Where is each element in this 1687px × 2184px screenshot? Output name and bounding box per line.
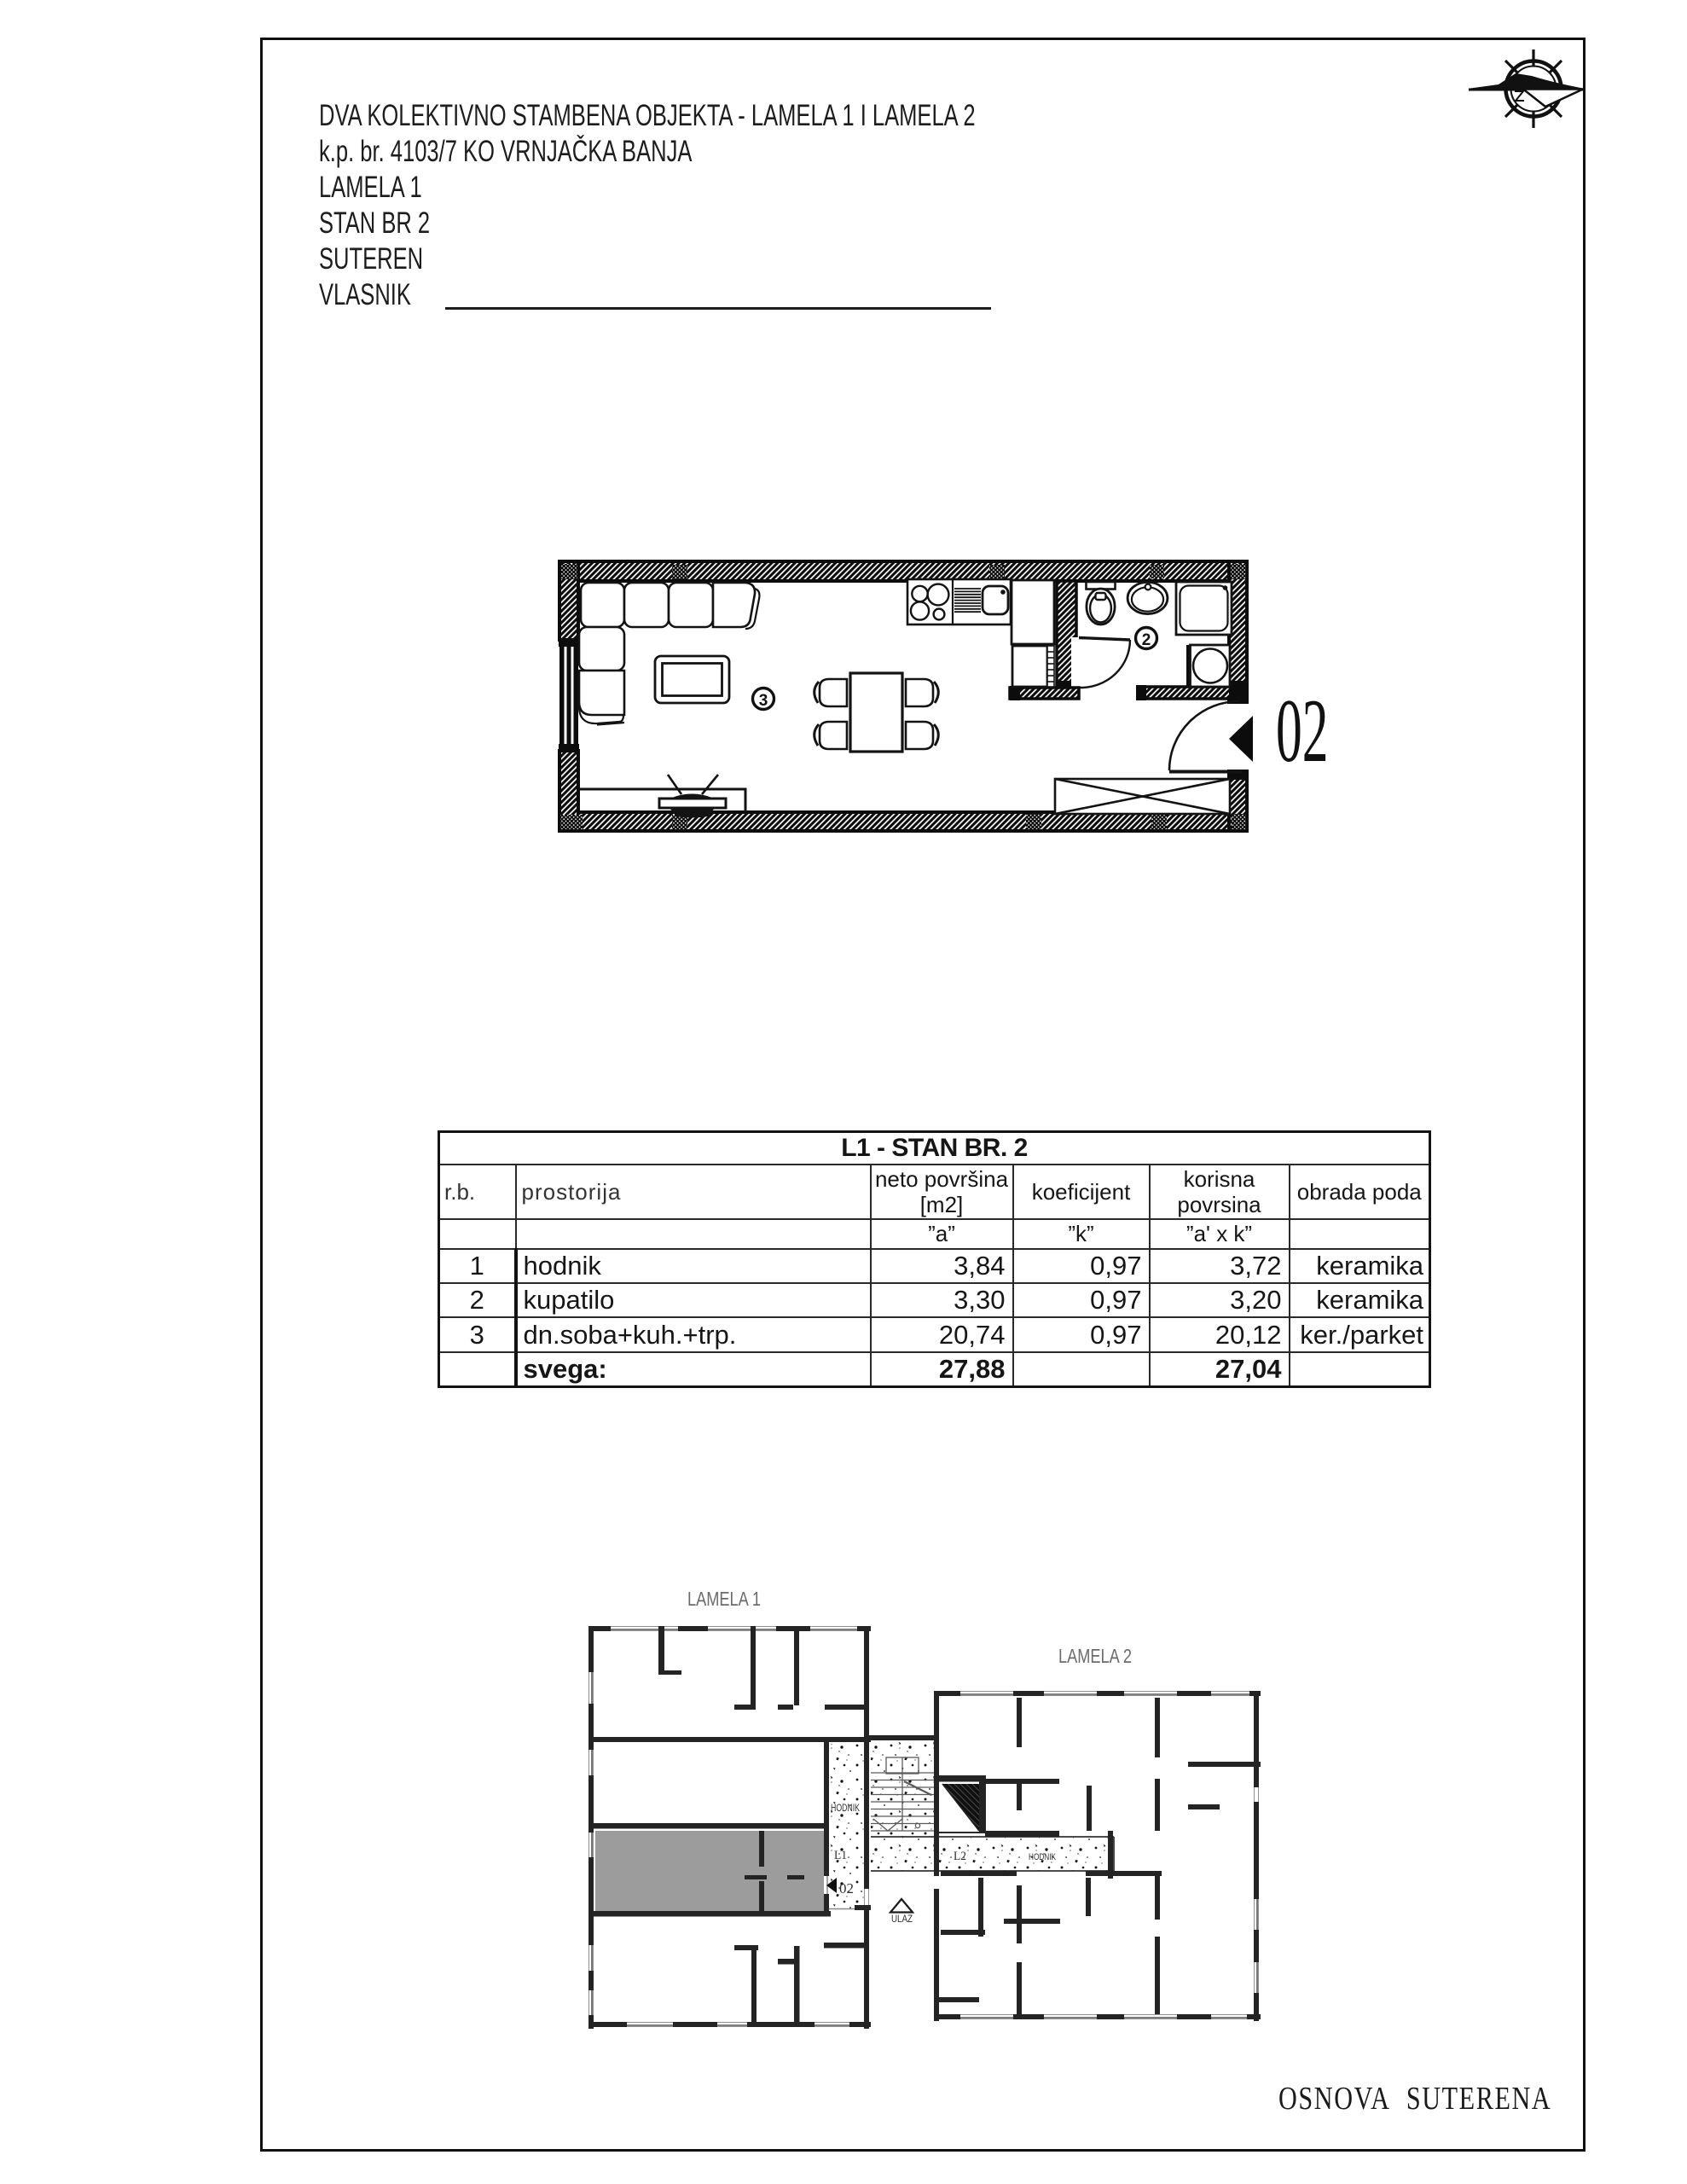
svg-text:02: 02 bbox=[839, 1880, 854, 1896]
svg-text:2: 2 bbox=[1142, 631, 1151, 649]
svg-text:L2: L2 bbox=[954, 1850, 966, 1863]
svg-text:ULAZ: ULAZ bbox=[891, 1913, 913, 1925]
svg-text:LAMELA 2: LAMELA 2 bbox=[1058, 1645, 1132, 1667]
svg-text:HODNIK: HODNIK bbox=[1029, 1852, 1056, 1862]
svg-text:LAMELA 1: LAMELA 1 bbox=[687, 1588, 761, 1610]
svg-text:3: 3 bbox=[759, 692, 768, 710]
svg-text:L1: L1 bbox=[834, 1849, 847, 1862]
svg-text:HODNIK: HODNIK bbox=[831, 1802, 860, 1814]
